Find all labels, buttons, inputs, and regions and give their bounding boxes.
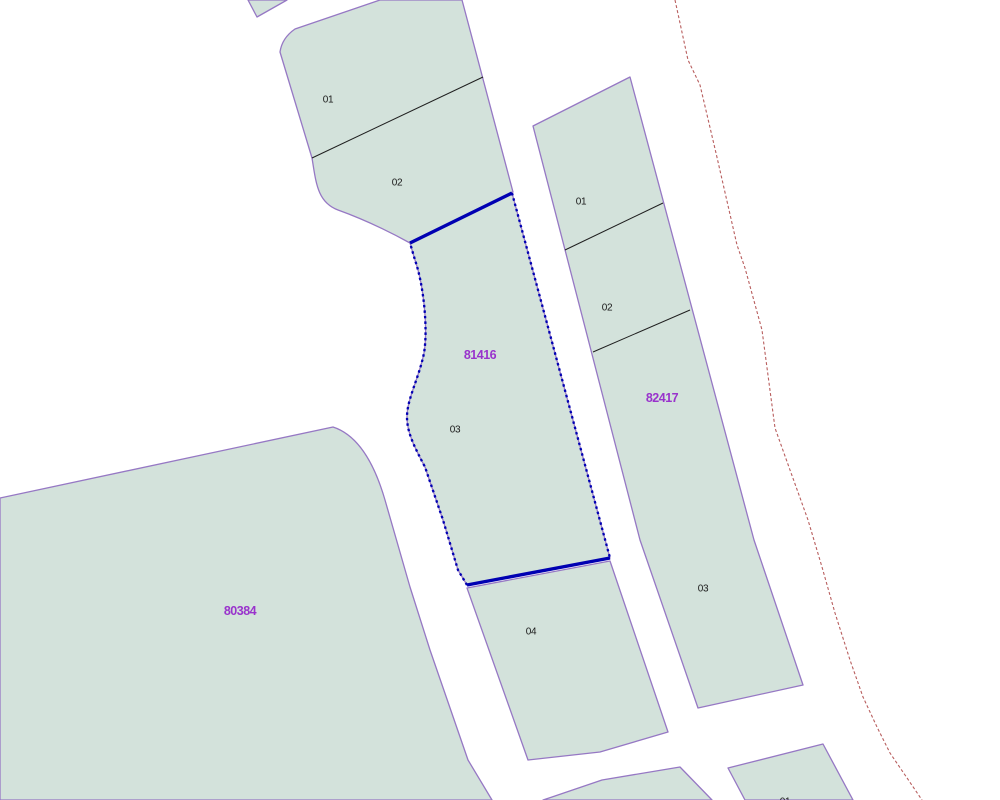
parcel-north-block[interactable] (280, 0, 513, 243)
subparcel-label: 03 (698, 584, 709, 595)
subparcel-label: 02 (392, 178, 403, 189)
parcel-bottom-left[interactable] (543, 767, 712, 800)
subparcel-label: 04 (526, 627, 537, 638)
parcel-number-label: 81416 (464, 348, 497, 362)
parcel-fragment-top[interactable] (248, 0, 287, 17)
parcel-04[interactable] (467, 561, 668, 760)
subparcel-label: 02 (602, 303, 613, 314)
subparcel-label: 01 (576, 197, 587, 208)
subparcel-label: 01 (780, 797, 791, 800)
cadastral-map-viewport[interactable]: 0102814160304803840102824170301 (0, 0, 1000, 800)
parcels-layer (0, 0, 853, 800)
subparcel-label: 01 (323, 95, 334, 106)
cadastral-map-canvas[interactable]: 0102814160304803840102824170301 (0, 0, 1000, 800)
parcel-number-label: 82417 (646, 391, 679, 405)
parcel-number-label: 80384 (224, 604, 257, 618)
subparcel-label: 03 (450, 425, 461, 436)
parcel-bottom-right[interactable] (728, 744, 853, 800)
